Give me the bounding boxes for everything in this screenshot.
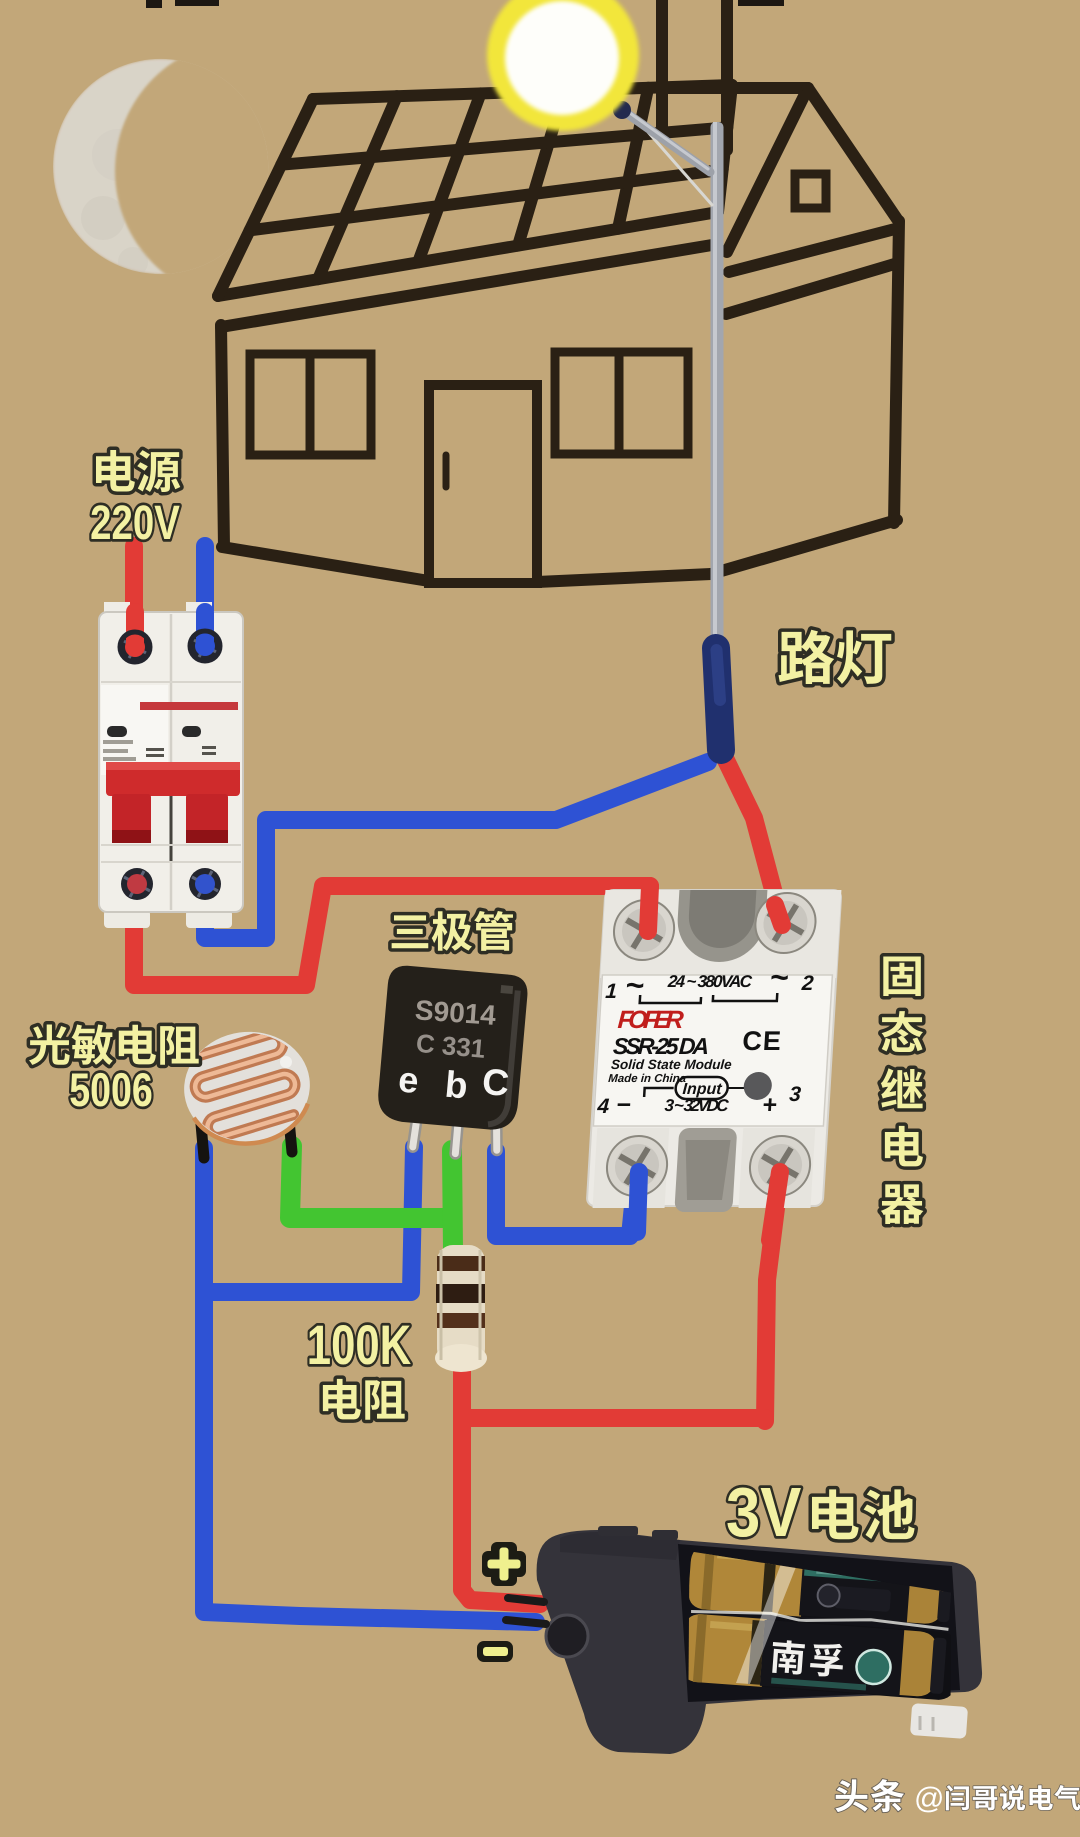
svg-text:5006: 5006 (69, 1064, 153, 1117)
svg-text:3: 3 (789, 1083, 802, 1106)
svg-text:FOFER: FOFER (617, 1006, 685, 1034)
svg-text:−: − (616, 1091, 632, 1119)
svg-text:~: ~ (625, 967, 646, 1003)
svg-text:3V: 3V (726, 1472, 801, 1551)
svg-text:C: C (481, 1061, 511, 1104)
svg-text:~: ~ (769, 959, 790, 995)
svg-text:2: 2 (800, 972, 814, 995)
svg-text:4: 4 (596, 1095, 610, 1118)
svg-text:Solid State Module: Solid State Module (611, 1057, 733, 1072)
svg-text:3 ~ 32VDC: 3 ~ 32VDC (664, 1096, 730, 1115)
svg-text:e: e (397, 1059, 421, 1102)
svg-text:Made in China: Made in China (608, 1073, 687, 1085)
svg-text:C 331: C 331 (415, 1028, 487, 1064)
svg-text:SSR-25 DA: SSR-25 DA (612, 1033, 710, 1059)
svg-text:24 ~ 380VAC: 24 ~ 380VAC (666, 972, 753, 991)
svg-text:100K: 100K (307, 1314, 411, 1376)
svg-text:1: 1 (605, 980, 618, 1003)
svg-text:@: @ (914, 1782, 944, 1815)
svg-text:S9014: S9014 (414, 994, 497, 1031)
svg-text:220V: 220V (90, 497, 180, 550)
svg-text:b: b (443, 1064, 469, 1107)
svg-text:CE: CE (742, 1026, 783, 1056)
svg-text:+: + (762, 1091, 778, 1119)
